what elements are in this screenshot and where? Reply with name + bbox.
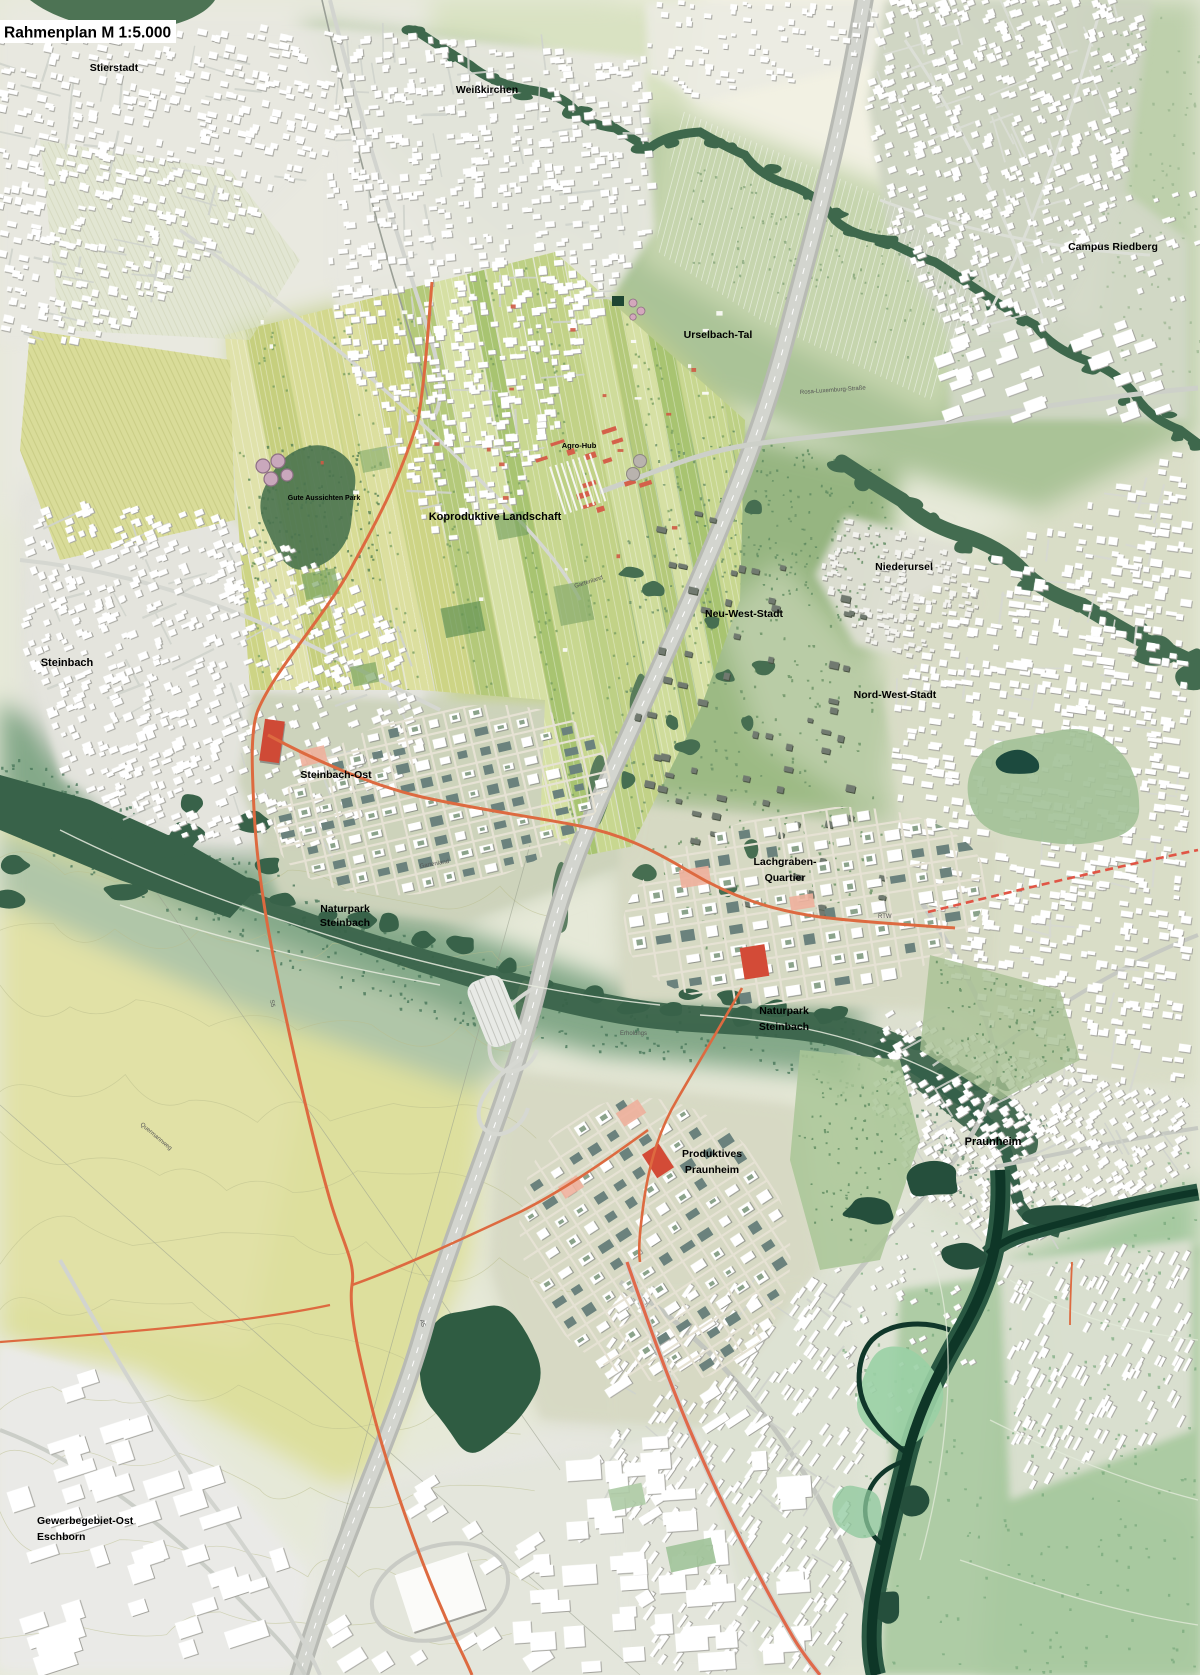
svg-text:Erholungs: Erholungs — [620, 1031, 647, 1037]
svg-text:Weißkirchen: Weißkirchen — [456, 84, 518, 96]
svg-text:Produktives: Produktives — [682, 1148, 742, 1160]
svg-text:Neu-West-Stadt: Neu-West-Stadt — [705, 608, 783, 620]
svg-text:RTW: RTW — [878, 914, 892, 920]
svg-text:Stierstadt: Stierstadt — [90, 62, 139, 74]
svg-text:Gewerbegebiet-Ost: Gewerbegebiet-Ost — [37, 1515, 134, 1527]
svg-text:Campus Riedberg: Campus Riedberg — [1068, 241, 1158, 253]
svg-text:Steinbach: Steinbach — [320, 917, 370, 929]
svg-text:Steinbach: Steinbach — [41, 657, 94, 669]
svg-text:Praunheim: Praunheim — [685, 1164, 739, 1176]
svg-text:Naturpark: Naturpark — [759, 1005, 809, 1017]
svg-text:Rahmenplan M 1:5.000: Rahmenplan M 1:5.000 — [4, 25, 171, 42]
svg-text:Steinbach-Ost: Steinbach-Ost — [300, 769, 372, 781]
svg-text:Praunheim: Praunheim — [965, 1136, 1022, 1148]
svg-text:Steinbach: Steinbach — [759, 1021, 809, 1033]
svg-text:Koproduktive Landschaft: Koproduktive Landschaft — [429, 511, 562, 523]
svg-text:Eschborn: Eschborn — [37, 1531, 85, 1543]
svg-text:Niederursel: Niederursel — [875, 561, 933, 573]
svg-text:Lachgraben-: Lachgraben- — [753, 856, 817, 868]
svg-text:Nord-West-Stadt: Nord-West-Stadt — [854, 689, 937, 701]
svg-text:Agro-Hub: Agro-Hub — [562, 441, 597, 450]
svg-text:Gute Aussichten Park: Gute Aussichten Park — [288, 495, 361, 502]
svg-text:Quartier: Quartier — [765, 872, 806, 884]
svg-text:Naturpark: Naturpark — [320, 903, 370, 915]
svg-text:Urselbach-Tal: Urselbach-Tal — [684, 329, 753, 341]
